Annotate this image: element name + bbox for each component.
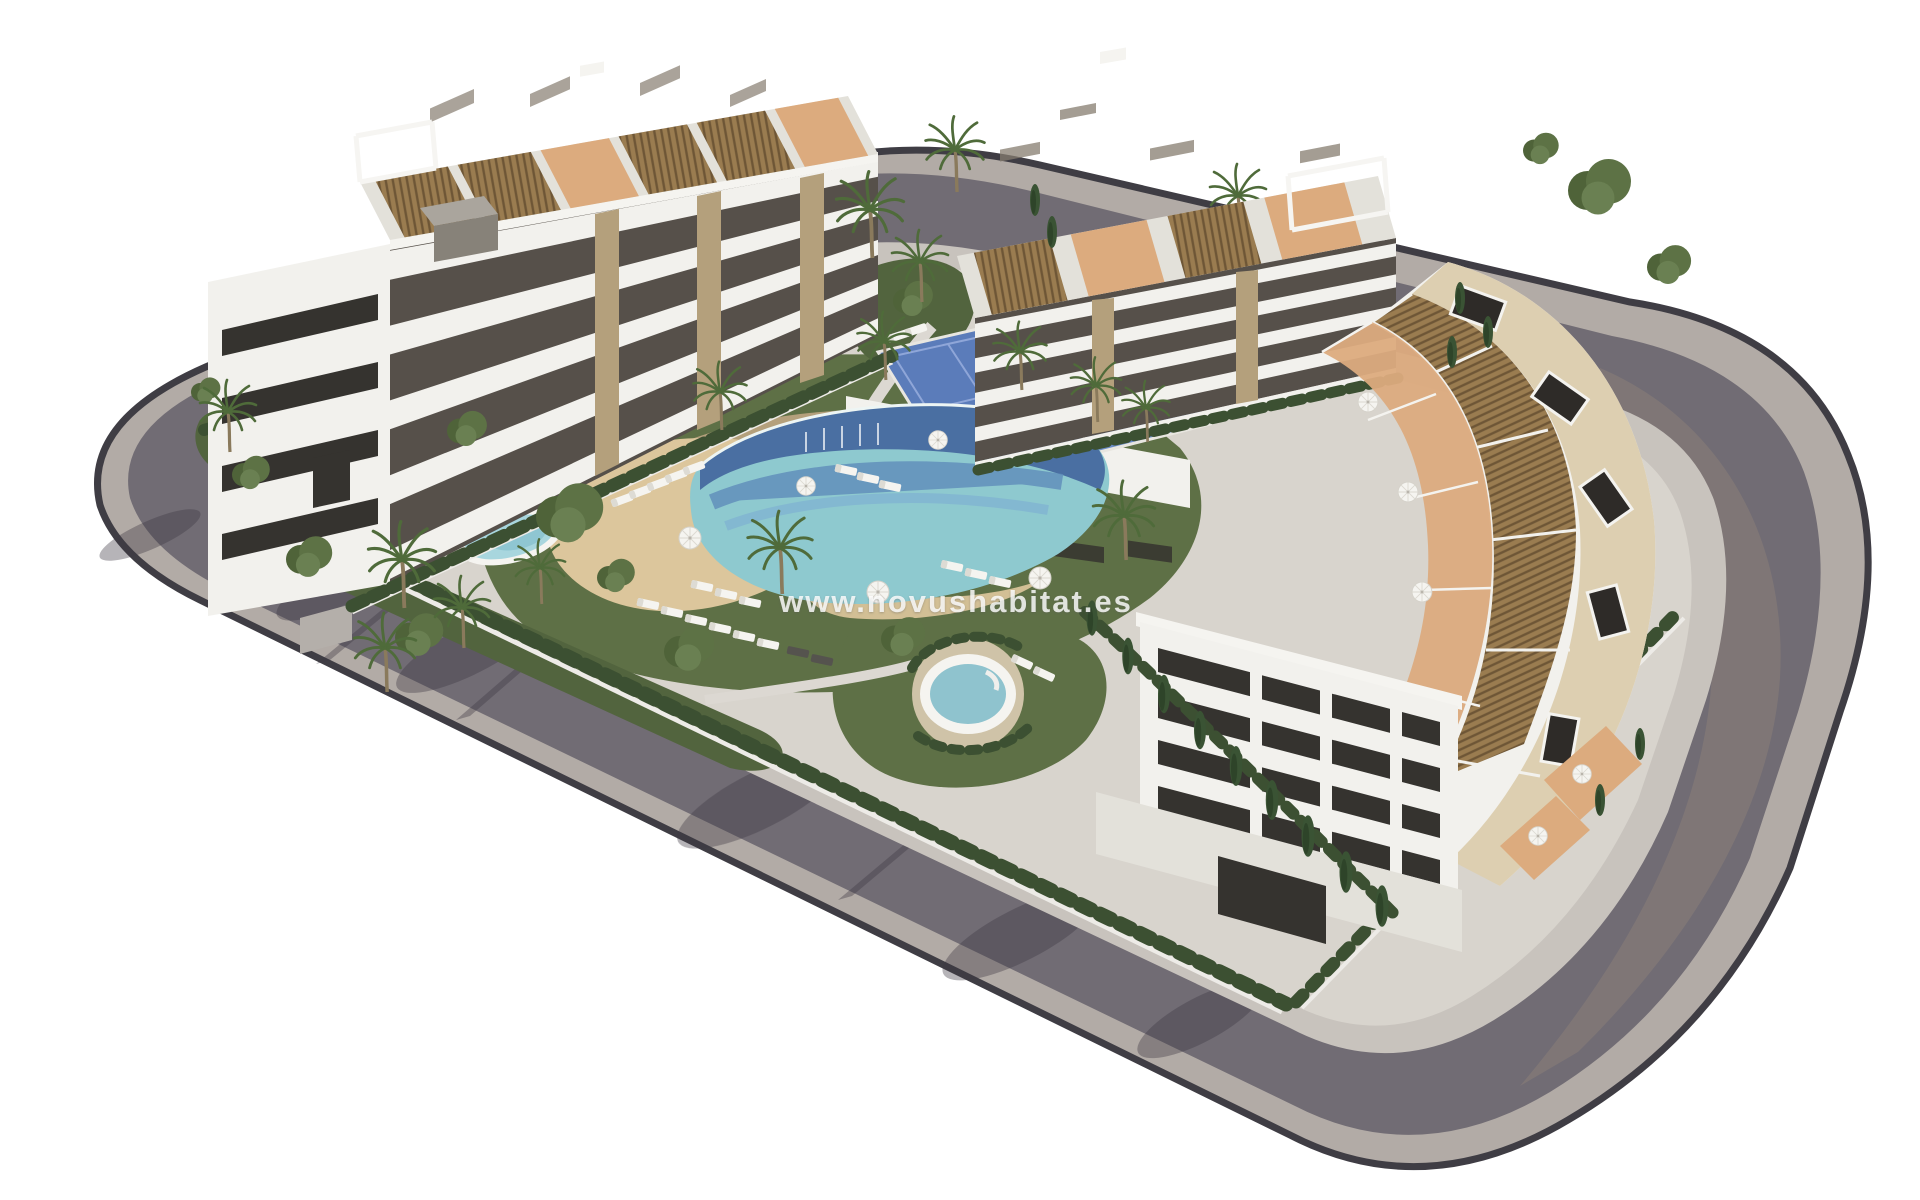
- parasol: [1529, 827, 1548, 846]
- cypress-tree: [1447, 336, 1457, 368]
- cypress-tree: [1340, 851, 1353, 893]
- cypress-tree: [1230, 746, 1243, 786]
- parasol: [679, 527, 701, 549]
- cypress-tree: [1266, 780, 1279, 820]
- cypress-tree: [1047, 216, 1057, 248]
- parasol: [797, 477, 816, 496]
- cypress-tree: [1455, 282, 1465, 314]
- cypress-tree: [1483, 316, 1493, 348]
- tree: [1568, 159, 1631, 215]
- cypress-tree: [1302, 815, 1315, 857]
- tree: [1523, 133, 1559, 164]
- parasol: [1358, 392, 1378, 412]
- parasol: [1398, 482, 1418, 502]
- parasol: [1573, 765, 1592, 784]
- cypress-tree: [1158, 675, 1170, 713]
- parasol: [929, 431, 948, 450]
- left-garage-door: [313, 450, 350, 508]
- cypress-tree: [1635, 728, 1645, 760]
- center-balcony-glints: [1000, 103, 1340, 163]
- cypress-tree: [1122, 638, 1134, 675]
- cypress-tree: [1194, 711, 1206, 749]
- watermark: www.novushabitat.es: [778, 584, 1133, 619]
- tree: [1647, 245, 1691, 284]
- cypress-tree: [1595, 784, 1605, 816]
- architectural-render: www.novushabitat.es: [0, 0, 1920, 1200]
- parasol: [1412, 582, 1432, 602]
- cypress-tree: [1376, 885, 1389, 927]
- cypress-tree: [1030, 184, 1040, 216]
- render-scene: www.novushabitat.es: [0, 0, 1920, 1200]
